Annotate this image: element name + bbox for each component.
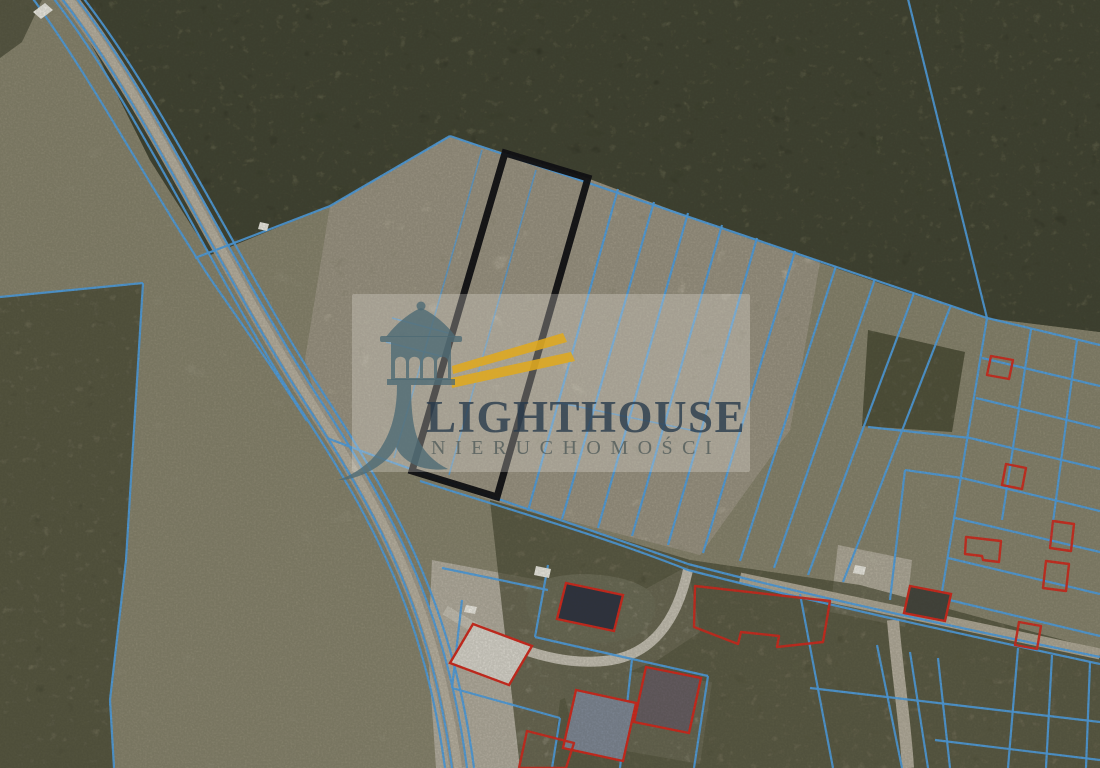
map-canvas [0, 0, 1100, 768]
aerial-cadastral-map: LIGHTHOUSE NIERUCHOMOŚCI [0, 0, 1100, 768]
photo-grain [0, 0, 1100, 768]
grain-layer [0, 0, 1100, 768]
